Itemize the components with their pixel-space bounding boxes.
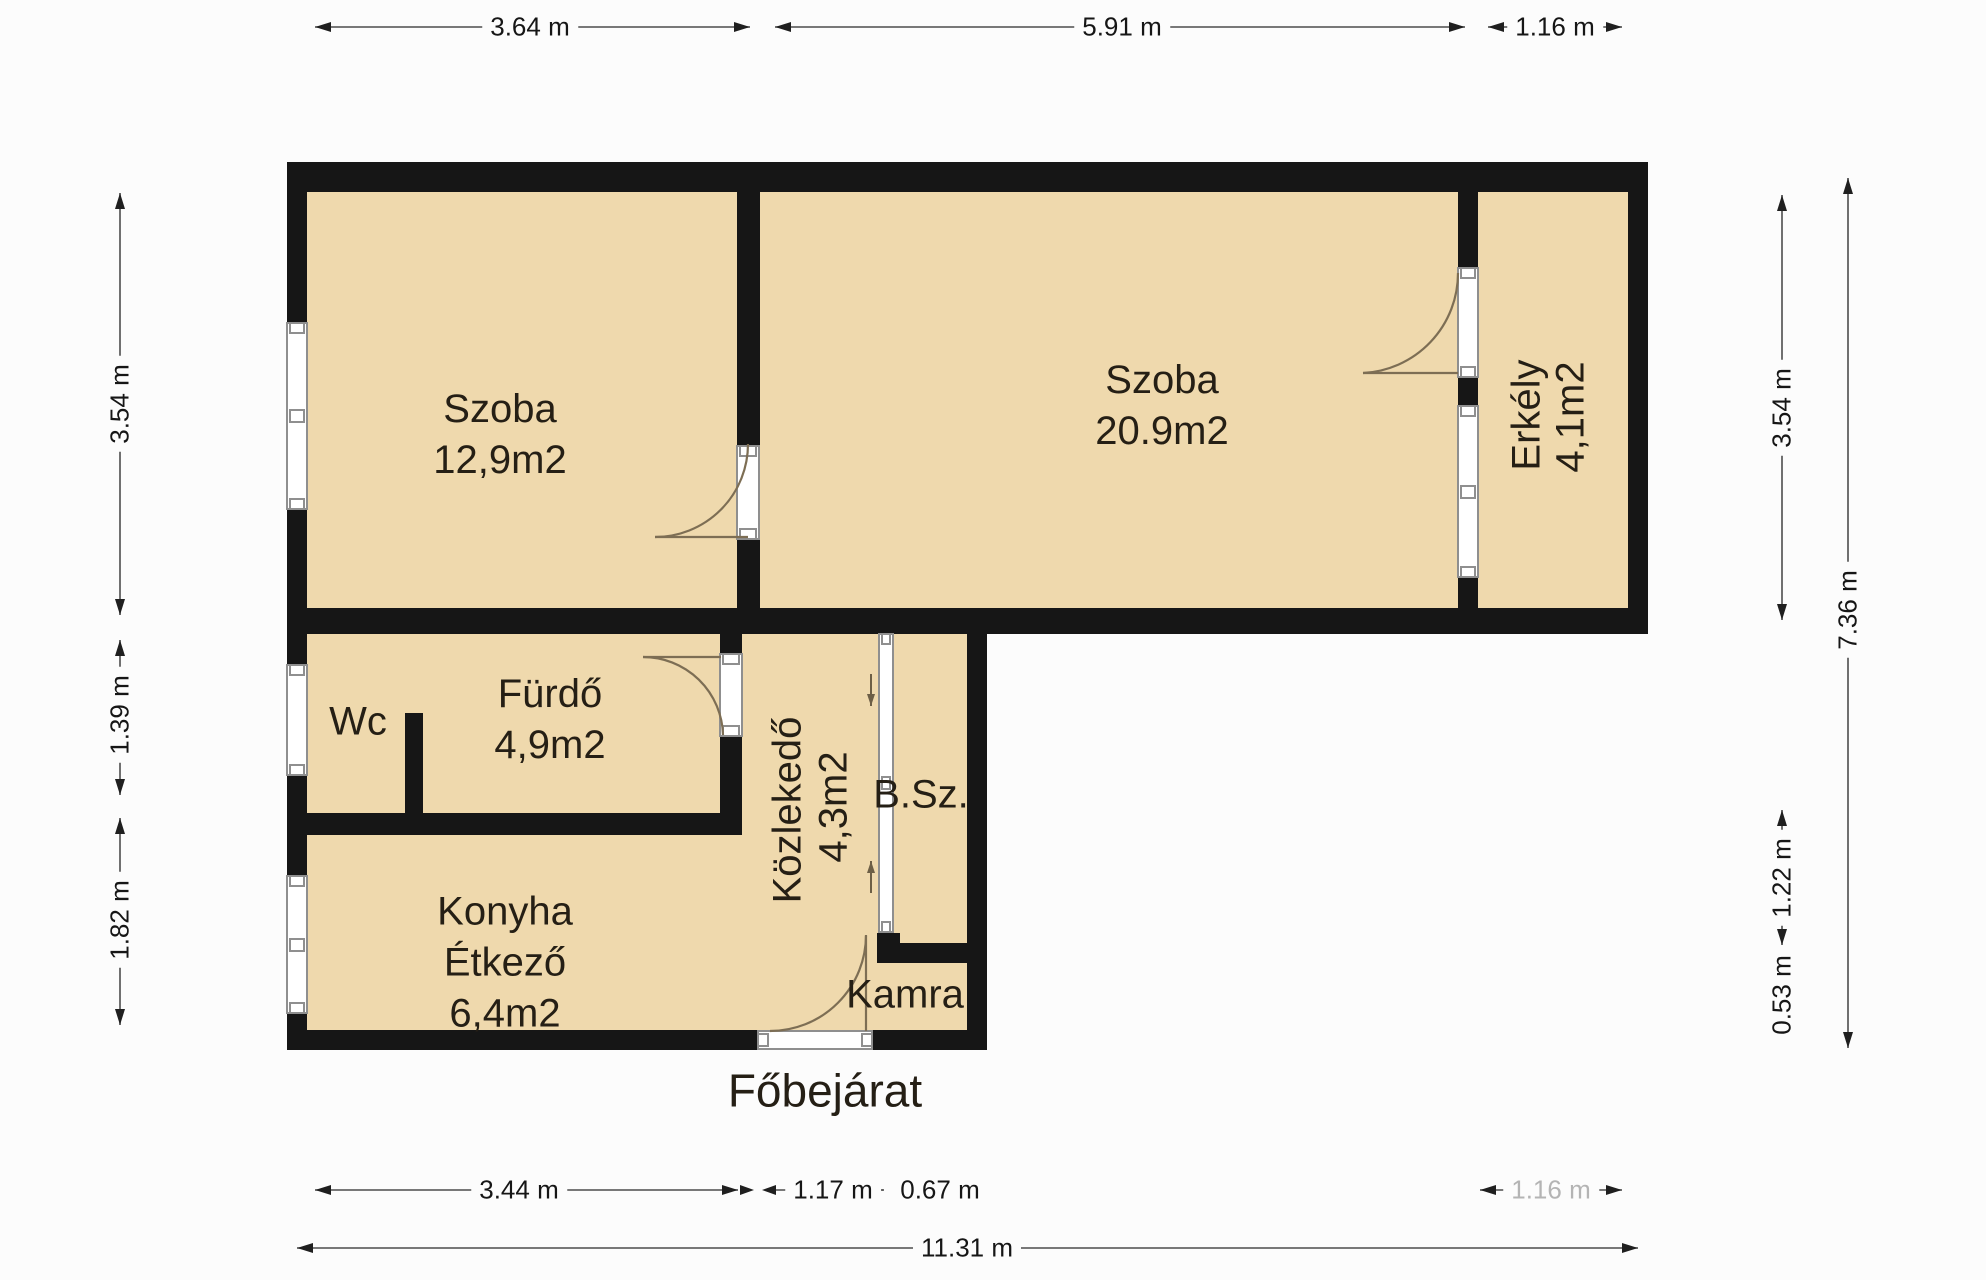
room-label-bsz: B.Sz. [873,770,969,821]
dim-right-4: 0.53 m [1766,947,1799,1043]
label-layer: Szoba 12,9m2 Szoba 20.9m2 Erkély 4,1m2 W… [0,0,1986,1280]
dim-bottom-1: 3.44 m [471,1174,567,1207]
dim-bottom-4: 1.16 m [1503,1174,1599,1207]
room-label-szoba1: Szoba 12,9m2 [433,384,566,486]
dim-left-3: 1.82 m [104,872,137,968]
dim-left-1: 3.54 m [104,356,137,452]
dim-top-1: 3.64 m [482,11,578,44]
dim-top-3: 1.16 m [1507,11,1603,44]
dim-left-2: 1.39 m [104,667,137,763]
room-area: 6,4m2 [437,989,573,1040]
room-name: Szoba [1095,355,1228,406]
dim-top-2: 5.91 m [1074,11,1170,44]
room-label-kozlekedo-area: 4,3m2 [809,751,860,862]
entrance-label: Főbejárat [728,1066,922,1117]
dim-bottom-3: 0.67 m [892,1174,988,1207]
dim-bottom-2: 1.17 m [785,1174,881,1207]
floor-plan-page: { "dims": { "top": ["3.64 m", "5.91 m", … [0,0,1986,1280]
room-name-2: Étkező [437,938,573,989]
room-name: Fürdő [494,669,605,720]
room-area: 4,9m2 [494,720,605,771]
dim-right-3: 1.22 m [1766,830,1799,926]
room-name: Konyha [437,887,573,938]
dim-right-2: 7.36 m [1832,562,1865,658]
room-label-kozlekedo-name: Közlekedő [763,717,814,904]
room-label-kamra: Kamra [846,970,964,1021]
dim-right-1: 3.54 m [1766,360,1799,456]
room-area: 12,9m2 [433,435,566,486]
room-label-konyha: Konyha Étkező 6,4m2 [437,887,573,1040]
room-name: Szoba [433,384,566,435]
room-area: 20.9m2 [1095,406,1228,457]
room-label-wc: Wc [329,697,387,748]
room-label-furdo: Fürdő 4,9m2 [494,669,605,771]
dim-total-width: 11.31 m [913,1232,1021,1265]
room-label-szoba2: Szoba 20.9m2 [1095,355,1228,457]
room-label-erkely-area: 4,1m2 [1546,361,1597,472]
